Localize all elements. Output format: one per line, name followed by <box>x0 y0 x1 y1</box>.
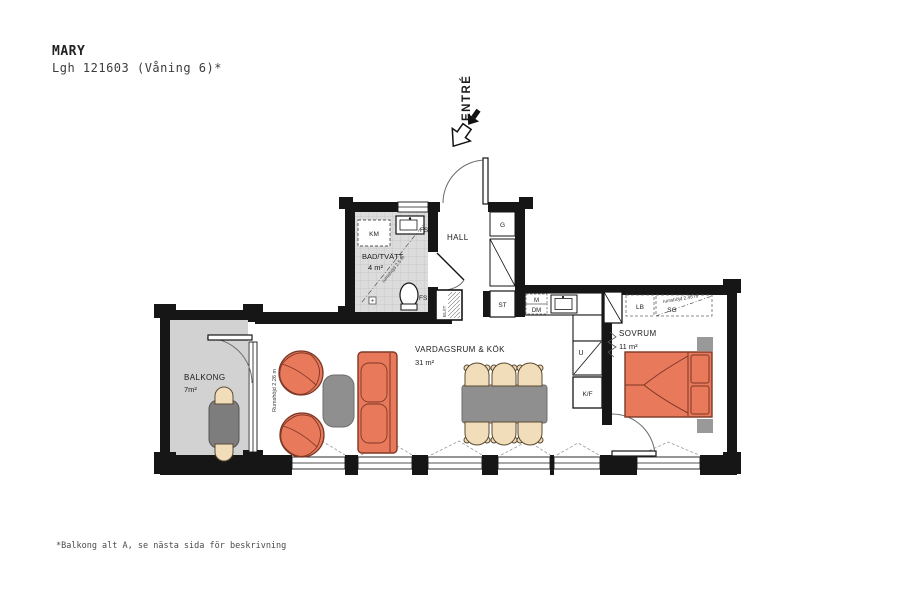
living-ceiling-label: Rumshöjd 2.26 m <box>272 368 278 412</box>
hall-cabinets: G ST <box>490 212 515 317</box>
living-area: 31 m² <box>415 358 435 367</box>
washer-label: KM <box>369 231 379 238</box>
window <box>428 457 482 469</box>
tall-wardrobe <box>490 239 515 286</box>
st-label: ST <box>498 302 506 309</box>
wall-segment <box>412 455 428 475</box>
floorplan-drawing: ENTRÉ KM FS FS <box>0 0 900 600</box>
wall-segment <box>482 455 498 475</box>
bathroom-label: BAD/TVÄTT <box>362 252 404 261</box>
nightstand <box>697 419 713 433</box>
dining-chair <box>517 363 543 386</box>
wall-segment <box>550 455 554 475</box>
wall-segment <box>727 285 737 470</box>
door-leaf <box>437 253 464 280</box>
lb-label: LB <box>636 304 644 311</box>
sg-label: SG <box>667 307 676 314</box>
coffee-table <box>323 375 354 427</box>
balcony-chair <box>215 387 233 404</box>
bathroom-area: 4 m² <box>368 263 384 272</box>
dining-chair <box>464 363 490 386</box>
corner-post <box>243 450 263 474</box>
dishwasher-label: DM <box>532 308 541 314</box>
bed <box>625 352 712 417</box>
corner-post <box>519 197 533 209</box>
shaft <box>604 292 622 323</box>
toilet <box>400 283 418 310</box>
bedroom-area: 11 m² <box>619 342 638 351</box>
dining-chair <box>491 363 517 386</box>
corner-post <box>154 452 176 474</box>
sofa <box>358 352 397 453</box>
window <box>637 457 700 469</box>
corner-counter <box>573 315 602 341</box>
balcony-glazing <box>249 342 257 452</box>
balcony-chair <box>215 444 233 461</box>
corner-post <box>154 304 176 318</box>
wall-segment <box>160 310 170 470</box>
pillow <box>691 355 709 383</box>
bedroom-door <box>612 414 656 457</box>
el-it-cabinet: EL/IT <box>436 290 462 320</box>
bedroom-label: SOVRUM <box>619 329 657 338</box>
footnote: *Balkong alt A, se nästa sida för beskri… <box>56 541 286 551</box>
entry-door <box>443 158 488 204</box>
balcony-area: 7m² <box>184 385 197 394</box>
armchair <box>280 413 324 457</box>
living-furniture <box>279 351 547 457</box>
oven-label: U <box>578 350 583 357</box>
window <box>554 457 600 469</box>
dining-chair <box>464 422 490 445</box>
dining-chair <box>517 422 543 445</box>
living-label: VARDAGSRUM & KÖK <box>415 345 505 354</box>
window <box>292 457 345 469</box>
kf-label: K/F <box>582 391 592 398</box>
el-it-label: EL/IT <box>442 305 448 317</box>
bathroom-door <box>437 253 464 291</box>
wardrobe-g-label: G <box>500 222 505 229</box>
wall-segment <box>483 291 490 317</box>
window <box>398 202 428 212</box>
corner-post <box>723 279 741 293</box>
floor-drain <box>369 297 376 304</box>
wall-segment <box>345 455 358 475</box>
window <box>358 457 412 469</box>
dining-table <box>462 385 547 423</box>
nightstand <box>697 337 713 351</box>
fs-label-1: FS <box>420 227 429 234</box>
door-leaf <box>208 335 252 340</box>
floorplan-page: MARY Lgh 121603 (Våning 6)* <box>0 0 900 600</box>
corner-post <box>339 197 353 209</box>
hall-label: HALL <box>447 233 469 242</box>
balcony-table <box>209 400 239 448</box>
micro-label: M <box>534 298 539 304</box>
pillow <box>691 386 709 414</box>
wall-segment <box>428 207 438 252</box>
balcony-label: BALKONG <box>184 373 225 382</box>
armchair <box>279 351 323 395</box>
corner-post <box>338 306 354 324</box>
bedroom-fixtures: LB SG rumshöjd 2.45 m <box>625 293 713 433</box>
sill-mark <box>557 443 599 455</box>
window <box>498 457 550 469</box>
fridge-freezer-kf: K/F <box>573 377 602 408</box>
kitchen-sink <box>551 295 577 313</box>
corner-post <box>723 452 741 474</box>
oven-u: U <box>573 341 602 375</box>
corner-post <box>243 304 263 318</box>
wall-segment <box>600 455 637 475</box>
fs-label-2: FS <box>419 295 428 302</box>
wall-segment <box>515 202 525 317</box>
wall-segment <box>345 202 355 324</box>
door-leaf <box>612 451 656 456</box>
entre-label: ENTRÉ <box>460 75 473 121</box>
door-leaf <box>483 158 488 204</box>
dining-chair <box>491 422 517 445</box>
